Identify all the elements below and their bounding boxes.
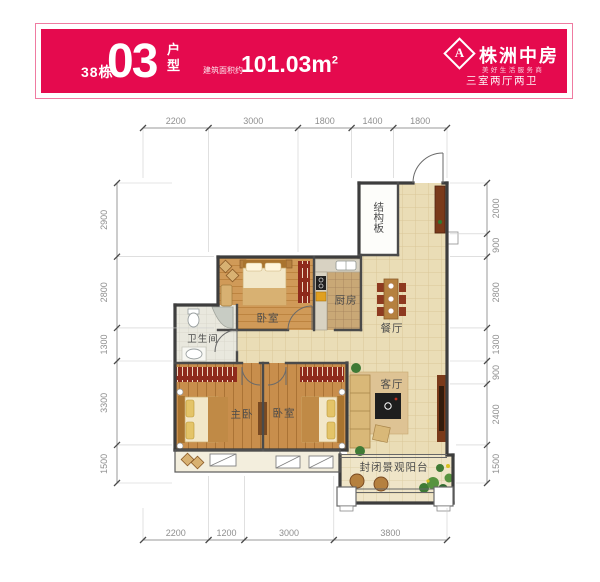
dimension-right: 2000 900 2800 1300 900 2400 1500 xyxy=(491,198,501,474)
room-label-dining: 餐厅 xyxy=(381,321,404,336)
dim-label: 1800 xyxy=(315,116,335,126)
room-label-structure: 结构板 xyxy=(373,201,384,233)
room-label-master: 主卧 xyxy=(231,407,254,422)
plant-top xyxy=(351,363,361,373)
dim-label: 1300 xyxy=(99,334,109,354)
wardrobe-master xyxy=(176,367,237,382)
dim-label: 900 xyxy=(491,365,501,380)
room-label-bedroom-top: 卧室 xyxy=(257,311,280,326)
pier-right xyxy=(434,487,453,506)
dimension-bottom: 2200 1200 3000 3800 xyxy=(166,528,401,538)
dim-label: 2800 xyxy=(491,282,501,302)
dim-label: 1300 xyxy=(491,334,501,354)
floorplan-page: { "header": { "building": "38栋", "unit_n… xyxy=(0,0,600,582)
floor-plan: 2200 3000 1800 1400 1800 2200 1200 3000 … xyxy=(0,0,600,582)
dim-label: 1800 xyxy=(410,116,430,126)
entry-cabinet xyxy=(435,186,445,233)
dim-label: 1500 xyxy=(99,454,109,474)
dim-label: 2200 xyxy=(166,528,186,538)
bed-top-bedroom xyxy=(240,260,292,305)
dimension-left: 2900 2800 1300 3300 1500 xyxy=(99,210,109,474)
dim-label: 900 xyxy=(491,238,501,253)
dining-set xyxy=(377,279,406,319)
tv xyxy=(439,386,444,431)
coffee-table xyxy=(375,393,401,419)
sofa xyxy=(350,375,370,448)
dim-label: 2800 xyxy=(99,282,109,302)
pier-left xyxy=(337,487,356,506)
room-label-balcony: 封闭景观阳台 xyxy=(360,460,429,475)
dim-label: 3000 xyxy=(243,116,263,126)
wardrobe-top-bedroom xyxy=(298,261,310,303)
room-label-kitchen: 厨房 xyxy=(335,293,358,308)
dim-label: 1400 xyxy=(362,116,382,126)
room-label-bathroom: 卫生间 xyxy=(187,331,219,345)
dim-label: 2900 xyxy=(99,210,109,230)
dim-label: 2200 xyxy=(166,116,186,126)
master-furniture xyxy=(176,367,237,449)
ottoman xyxy=(372,425,390,443)
dim-label: 2400 xyxy=(491,404,501,424)
dimension-top: 2200 3000 1800 1400 1800 xyxy=(166,116,430,126)
dim-label: 3300 xyxy=(99,393,109,413)
sink xyxy=(186,349,202,359)
dim-label: 1500 xyxy=(491,454,501,474)
cabinet-plant xyxy=(438,220,442,224)
dim-label: 3000 xyxy=(279,528,299,538)
wardrobe-bedroom2 xyxy=(300,367,344,382)
dim-label: 3800 xyxy=(380,528,400,538)
stool-1 xyxy=(350,474,364,488)
dim-label: 1200 xyxy=(216,528,236,538)
entry-door-arc xyxy=(413,153,443,183)
dim-label: 2000 xyxy=(491,198,501,218)
pot xyxy=(316,292,326,301)
room-label-living: 客厅 xyxy=(381,377,404,392)
room-label-bedroom2: 卧室 xyxy=(273,406,296,421)
